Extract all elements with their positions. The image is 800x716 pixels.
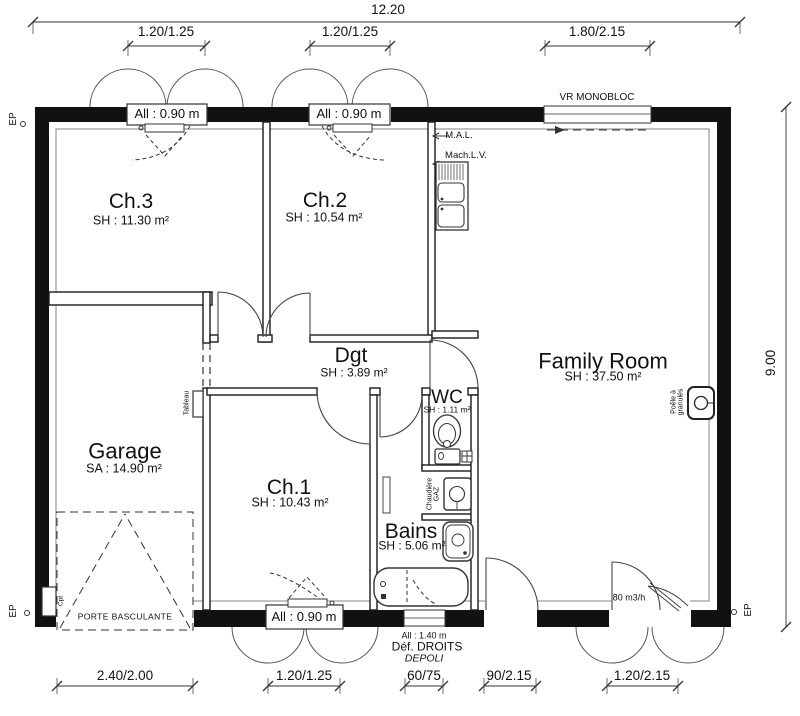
room-area-dgt: SH : 3.89 m²: [320, 367, 387, 380]
dim-top-w2-line: [305, 40, 395, 56]
fixture-label-poele-l2: granulés: [678, 389, 685, 416]
fixture-label-cpt: Cpt: [59, 596, 66, 606]
ep-mark-top-left: EP: [9, 112, 20, 125]
ep-mark-bottom-right: EP: [744, 603, 755, 616]
room-area-ch2: SH : 10.54 m²: [285, 211, 362, 224]
dim-top-w2: 1.20/1.25: [322, 25, 378, 39]
room-area-wc: SH : 1.11 m²: [423, 406, 470, 415]
dim-bottom-garage: 2.40/2.00: [97, 669, 153, 683]
room-name-dgt: Dgt: [335, 345, 368, 367]
fixture-label-tableau: Tableau: [183, 391, 190, 416]
door-bains: [380, 395, 422, 437]
toilet-icon: [434, 415, 473, 464]
dim-top-w1-line: [123, 40, 210, 56]
window-label-vr-monobloc: VR MONOBLOC: [559, 93, 634, 104]
dim-top-w3-line: [540, 40, 655, 56]
dim-bottom-ch1: 1.20/1.25: [276, 669, 332, 683]
window-label-ch2: All : 0.90 m: [316, 107, 381, 121]
fixture-label-chaudiere-l1: Chaudière: [427, 478, 434, 510]
sink-unit: [433, 133, 468, 230]
dim-bottom-bains: 60/75: [407, 669, 441, 683]
floor-plan-page: { "dims": { "top_overall": "12.20", "top…: [0, 0, 800, 716]
room-name-garage: Garage: [88, 439, 161, 462]
room-area-ch3: SH : 11.30 m²: [93, 214, 169, 227]
boiler-icon: [444, 478, 471, 510]
window-vr-monobloc: [544, 106, 651, 134]
ep-mark-bottom-left: EP: [9, 604, 20, 617]
dim-top-overall-line: [28, 17, 745, 34]
door-wc: [430, 340, 478, 388]
room-area-garage: SA : 14.90 m²: [86, 462, 162, 475]
pellet-stove-icon: [688, 387, 714, 419]
bathtub-icon: [374, 568, 468, 606]
window-label-ch3: All : 0.90 m: [134, 107, 199, 121]
window-label-depoli: DEPOLI: [405, 653, 444, 664]
room-name-ch3: Ch.3: [109, 191, 153, 213]
fixture-label-mal: M.A.L.: [445, 131, 472, 141]
bains-door-leaf: [383, 477, 390, 513]
door-ch1: [317, 391, 370, 444]
garage-hall-opening: [203, 343, 210, 388]
fixture-label-poele-l1: Poêle à: [671, 389, 678, 416]
dim-bottom-french: 1.20/2.15: [614, 669, 670, 683]
fixture-label-machlv: Mach.L.V.: [445, 151, 487, 161]
window-w140: [404, 610, 445, 626]
fixture-label-chaudiere: Chaudière GAZ: [427, 478, 442, 510]
washbasin-icon: [443, 522, 473, 561]
fixture-label-chaudiere-l2: GAZ: [434, 478, 441, 510]
window-label-def-droits: Déf. DROITS: [392, 641, 463, 654]
dim-right-overall: 9.00: [764, 350, 778, 376]
window-label-ch1: All : 0.90 m: [271, 610, 336, 624]
fixture-label-poele: Poêle à granulés: [671, 389, 686, 416]
room-area-family: SH : 37.50 m²: [564, 370, 641, 383]
casement-ch1: [270, 573, 334, 607]
meter-niche: [42, 587, 56, 616]
fixture-label-porte-basculante: PORTE BASCULANTE: [78, 613, 173, 622]
room-area-bains: SH : 5.06 m²: [378, 540, 445, 553]
fixture-label-vent: 80 m3/h: [613, 593, 646, 602]
door-ch3: [218, 292, 263, 337]
room-area-ch1: SH : 10.43 m²: [251, 496, 328, 509]
dim-top-overall: 12.20: [371, 3, 405, 17]
dim-bottom-entry: 90/2.15: [486, 669, 531, 683]
dim-right-overall-line: [781, 102, 791, 632]
room-name-ch2: Ch.2: [303, 190, 347, 212]
dim-top-w3: 1.80/2.15: [569, 25, 625, 39]
door-ch2: [266, 293, 310, 337]
floor-plan-drawing: [0, 0, 800, 716]
tableau-box: [193, 391, 203, 417]
dim-top-w1: 1.20/1.25: [138, 25, 194, 39]
